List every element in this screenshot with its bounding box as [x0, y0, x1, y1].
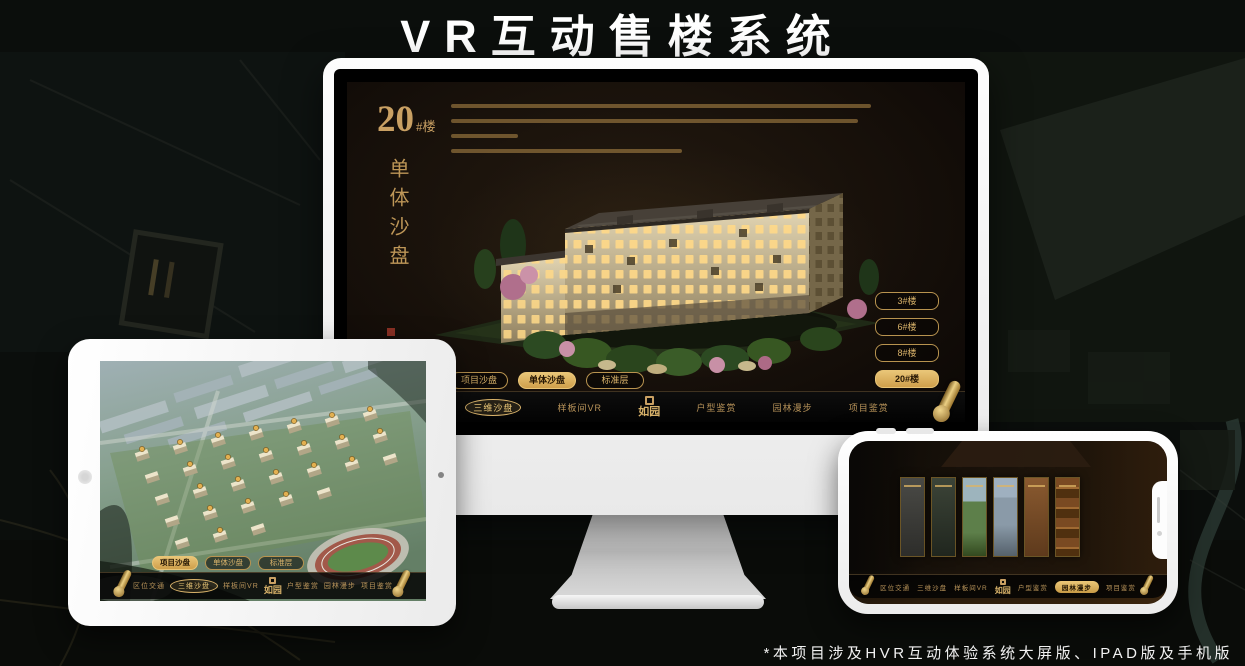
monitor-mode-tabs: 项目沙盘 单体沙盘 标准层 [450, 372, 644, 389]
speaker-icon [1157, 497, 1160, 523]
ipad-tab-standard-floor[interactable]: 标准层 [258, 556, 304, 570]
ipad-nav-garden-walk[interactable]: 园林漫步 [324, 581, 356, 591]
monitor-nav-showroom-vr[interactable]: 样板间VR [558, 401, 603, 414]
phone-nav-project-gallery[interactable]: 项目鉴赏 [1106, 582, 1136, 592]
scene-panel-building[interactable] [993, 477, 1018, 557]
ipad-tab-project-sandbox[interactable]: 项目沙盘 [152, 556, 198, 570]
scene-panel-courtyard[interactable] [931, 477, 956, 557]
seal-icon [645, 396, 654, 405]
ipad-camera-icon [78, 470, 92, 484]
phone-nav-garden-walk[interactable]: 园林漫步 [1055, 581, 1099, 593]
stage: VR互动售楼系统 *本项目涉及HVR互动体验系统大屏版、IPAD版及手机版 20… [0, 0, 1245, 666]
monitor-stand-base [552, 595, 764, 609]
ipad-nav-showroom-vr[interactable]: 样板间VR [223, 581, 259, 591]
monitor-nav-floorplan-gallery[interactable]: 户型鉴赏 [696, 401, 736, 414]
phone-nav-floorplan-gallery[interactable]: 户型鉴赏 [1018, 582, 1048, 592]
phone-screen: 区位交通 三维沙盘 样板间VR 如园 户型鉴赏 园林漫步 项目鉴赏 [849, 441, 1167, 604]
ipad-screen: 项目沙盘 单体沙盘 标准层 区位交通 三维沙盘 样板间VR 如园 户型鉴赏 园林… [100, 361, 426, 601]
floor-button-6[interactable]: 6#楼 [875, 318, 939, 336]
ipad-tab-single-sandbox[interactable]: 单体沙盘 [205, 556, 251, 570]
scene-panel-autumn[interactable] [1024, 477, 1049, 557]
floor-button-8[interactable]: 8#楼 [875, 344, 939, 362]
phone-volume-button[interactable] [876, 428, 896, 434]
scroll-handle-icon[interactable] [114, 569, 132, 595]
camera-icon [1157, 531, 1162, 536]
interior-ceiling [941, 441, 1091, 467]
ipad-mode-tabs: 项目沙盘 单体沙盘 标准层 [152, 556, 304, 570]
monitor-tab-standard-floor[interactable]: 标准层 [586, 372, 644, 389]
scroll-handle-icon[interactable] [862, 574, 875, 593]
floor-button-3[interactable]: 3#楼 [875, 292, 939, 310]
scene-panel-interior[interactable] [900, 477, 925, 557]
monitor-tab-single-sandbox[interactable]: 单体沙盘 [518, 372, 576, 389]
background-sign-frame [121, 232, 220, 336]
ipad-app-logo: 如园 [264, 577, 282, 595]
monitor-app-logo: 如园 [638, 396, 660, 418]
phone-nav-3d-sandbox[interactable]: 三维沙盘 [917, 582, 947, 592]
monitor-nav-garden-walk[interactable]: 园林漫步 [773, 401, 813, 414]
ipad-nav-project-gallery[interactable]: 项目鉴赏 [361, 581, 393, 591]
phone-nav-location-traffic[interactable]: 区位交通 [880, 582, 910, 592]
seal-icon [269, 577, 276, 584]
phone-app-logo: 如园 [995, 579, 1011, 595]
monitor-nav-3d-sandbox[interactable]: 三维沙盘 [465, 399, 521, 416]
ipad-nav-floorplan-gallery[interactable]: 户型鉴赏 [287, 581, 319, 591]
ipad-main-navbar: 区位交通 三维沙盘 样板间VR 如园 户型鉴赏 园林漫步 项目鉴赏 [100, 572, 426, 599]
phone-power-button[interactable] [906, 428, 934, 434]
phone-frame: 区位交通 三维沙盘 样板间VR 如园 户型鉴赏 园林漫步 项目鉴赏 [838, 431, 1178, 614]
ipad-nav-3d-sandbox[interactable]: 三维沙盘 [170, 579, 218, 593]
seal-stamp-icon [387, 328, 395, 336]
phone-nav-showroom-vr[interactable]: 样板间VR [954, 582, 988, 592]
scene-panel-study[interactable] [1055, 477, 1080, 557]
scene-gallery [900, 477, 1080, 557]
ipad-home-button[interactable] [438, 472, 444, 478]
page-title: VR互动售楼系统 [0, 0, 1245, 65]
scroll-handle-icon[interactable] [1141, 574, 1154, 593]
phone-notch [1152, 481, 1167, 559]
building-3d-model-view[interactable] [417, 117, 897, 377]
floor-button-20[interactable]: 20#楼 [875, 370, 939, 388]
ipad-frame: 项目沙盘 单体沙盘 标准层 区位交通 三维沙盘 样板间VR 如园 户型鉴赏 园林… [68, 339, 456, 626]
monitor-tab-project-sandbox[interactable]: 项目沙盘 [450, 372, 508, 389]
monitor-nav-project-gallery[interactable]: 项目鉴赏 [849, 401, 889, 414]
floor-button-group: 3#楼 6#楼 8#楼 20#楼 [875, 292, 939, 388]
seal-icon [1000, 579, 1006, 585]
phone-main-navbar: 区位交通 三维沙盘 样板间VR 如园 户型鉴赏 园林漫步 项目鉴赏 [849, 574, 1167, 598]
building-subtitle-vertical: 单体沙盘 [383, 158, 412, 318]
footnote: *本项目涉及HVR互动体验系统大屏版、IPAD版及手机版 [764, 642, 1233, 663]
scene-panel-garden[interactable] [962, 477, 987, 557]
ipad-nav-location-traffic[interactable]: 区位交通 [133, 581, 165, 591]
building-number: 20 [377, 99, 414, 140]
scroll-handle-icon[interactable] [393, 569, 411, 595]
